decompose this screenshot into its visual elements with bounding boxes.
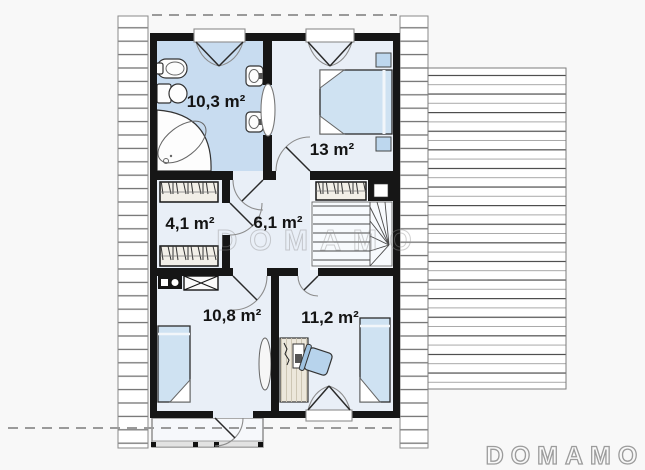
floor-plan-drawing: 10,3 m² 13 m² 4,1 m² 6,1 m² 10,8 m² 11,2…	[0, 0, 645, 470]
storage-box-icon	[184, 276, 218, 290]
wardrobe-stair-hall	[316, 182, 366, 200]
nightstand-icon	[376, 53, 391, 67]
room-area-label-bathroom: 10,3 m²	[187, 92, 246, 111]
toilet-icon	[157, 84, 187, 103]
roof-hatch-left	[118, 16, 148, 448]
chimney-duct	[368, 180, 393, 201]
balcony	[151, 418, 263, 447]
dresser-icon	[158, 276, 182, 289]
single-bed-icon	[158, 326, 190, 402]
wardrobe-closet-top	[160, 182, 218, 202]
double-bed-icon	[320, 70, 392, 134]
room-area-label-bedroom3: 11,2 m²	[301, 308, 359, 327]
brand-logo: DOMAMO	[486, 442, 645, 470]
room-area-label-bedroom1: 13 m²	[310, 140, 355, 159]
single-bed-icon	[360, 318, 390, 402]
nightstand-icon	[376, 137, 391, 151]
washbasin-icon	[156, 59, 187, 78]
pivot-door-bath-bedroom	[261, 84, 275, 136]
sink-icon	[246, 66, 264, 86]
room-area-label-wardrobe: 4,1 m²	[165, 214, 214, 233]
roof-hatch-right	[400, 16, 566, 448]
mirror-icon	[259, 338, 271, 390]
floor-plan-page: 10,3 m² 13 m² 4,1 m² 6,1 m² 10,8 m² 11,2…	[0, 0, 645, 470]
center-watermark: DOMAMO	[216, 225, 423, 257]
wardrobe-closet-bottom	[160, 246, 218, 266]
room-area-label-bedroom2: 10,8 m²	[203, 306, 262, 325]
